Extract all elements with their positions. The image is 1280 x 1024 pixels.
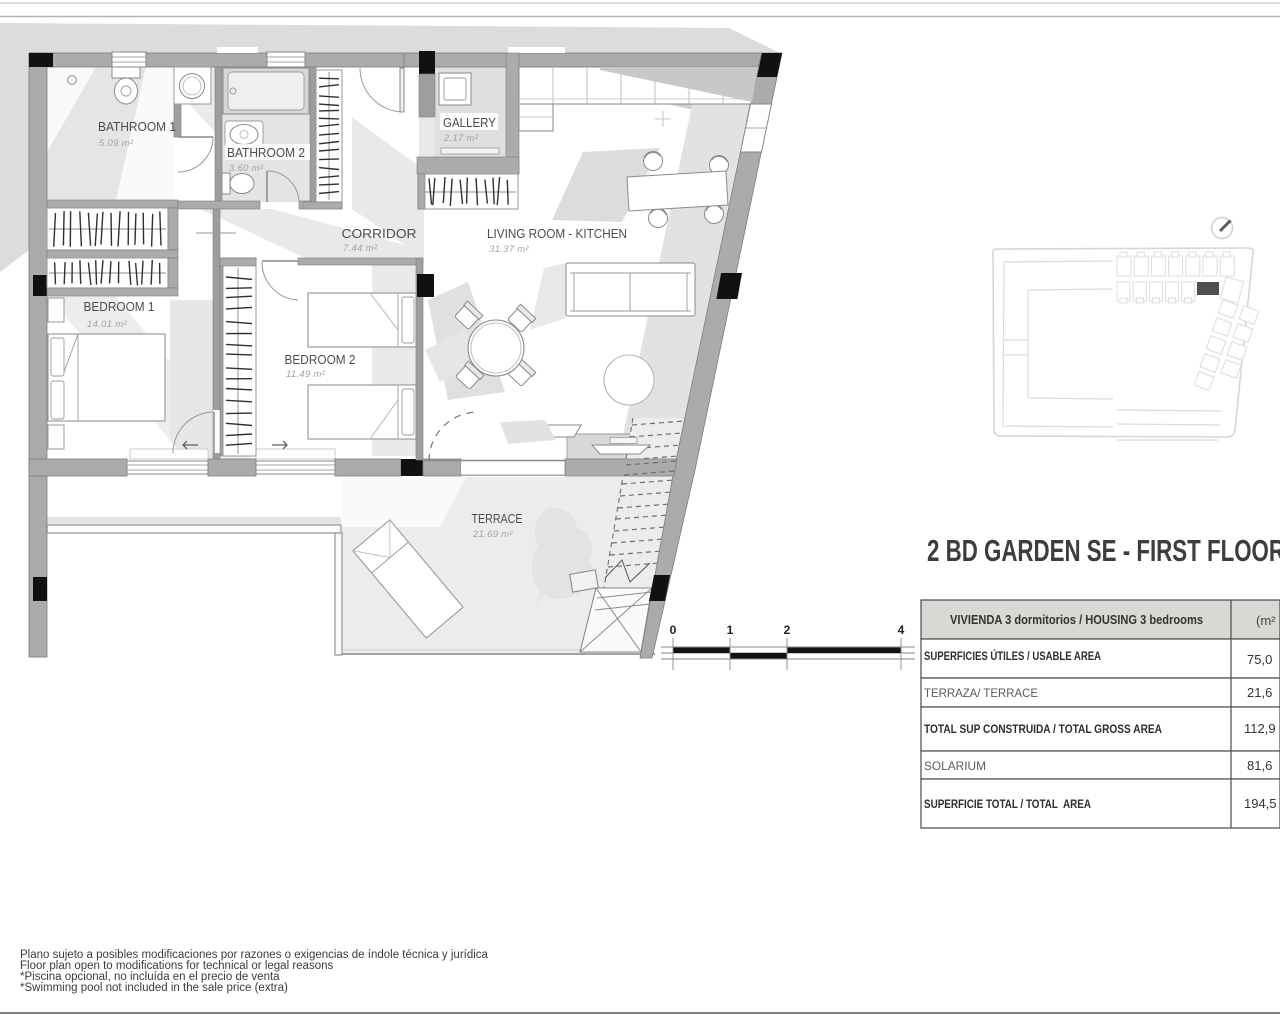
svg-text:*Swimming pool not included in: *Swimming pool not included in the sale … xyxy=(20,982,288,994)
svg-text:TERRAZA/ TERRACE: TERRAZA/ TERRACE xyxy=(924,686,1038,700)
svg-text:5.09 m²: 5.09 m² xyxy=(99,138,134,149)
svg-text:SUPERFICIE TOTAL / TOTAL AREA: SUPERFICIE TOTAL / TOTAL AREA xyxy=(924,797,1091,811)
svg-text:BATHROOM 1: BATHROOM 1 xyxy=(98,120,176,134)
svg-text:(m²: (m² xyxy=(1256,613,1276,628)
svg-text:GALLERY: GALLERY xyxy=(443,116,497,130)
svg-text:TOTAL SUP CONSTRUIDA / TOTAL G: TOTAL SUP CONSTRUIDA / TOTAL GROSS AREA xyxy=(924,722,1162,736)
svg-text:81,6: 81,6 xyxy=(1247,758,1272,773)
svg-text:SUPERFICIES ÚTILES / USABLE AR: SUPERFICIES ÚTILES / USABLE AREA xyxy=(924,648,1101,663)
svg-text:0: 0 xyxy=(670,623,677,637)
svg-text:2: 2 xyxy=(784,623,791,637)
svg-text:194,5: 194,5 xyxy=(1244,796,1277,811)
svg-text:21,6: 21,6 xyxy=(1247,685,1272,700)
svg-text:TERRACE: TERRACE xyxy=(472,512,523,526)
svg-text:75,0: 75,0 xyxy=(1247,652,1272,667)
svg-text:VIVIENDA 3 dormitorios / HOUSI: VIVIENDA 3 dormitorios / HOUSING 3 bedro… xyxy=(950,613,1203,627)
svg-text:SOLARIUM: SOLARIUM xyxy=(924,759,986,773)
svg-text:11.49 m²: 11.49 m² xyxy=(286,369,326,380)
svg-text:112,9: 112,9 xyxy=(1244,721,1276,736)
svg-text:2.17 m²: 2.17 m² xyxy=(443,133,479,144)
svg-text:7.44 m²: 7.44 m² xyxy=(343,243,378,254)
svg-text:CORRIDOR: CORRIDOR xyxy=(342,227,417,241)
svg-text:BEDROOM 2: BEDROOM 2 xyxy=(285,353,356,367)
svg-text:31.37 m²: 31.37 m² xyxy=(489,244,529,255)
svg-text:BATHROOM 2: BATHROOM 2 xyxy=(227,146,305,160)
svg-text:21.69 m²: 21.69 m² xyxy=(472,529,513,540)
svg-text:4: 4 xyxy=(898,623,905,637)
svg-text:BEDROOM 1: BEDROOM 1 xyxy=(84,300,155,314)
svg-text:1: 1 xyxy=(727,623,734,637)
svg-text:3.60 m²: 3.60 m² xyxy=(229,163,264,174)
svg-text:2 BD GARDEN SE - FIRST FLOOR: 2 BD GARDEN SE - FIRST FLOOR xyxy=(927,533,1280,568)
svg-text:LIVING ROOM - KITCHEN: LIVING ROOM - KITCHEN xyxy=(487,227,627,241)
svg-text:14.01 m²: 14.01 m² xyxy=(87,319,127,330)
